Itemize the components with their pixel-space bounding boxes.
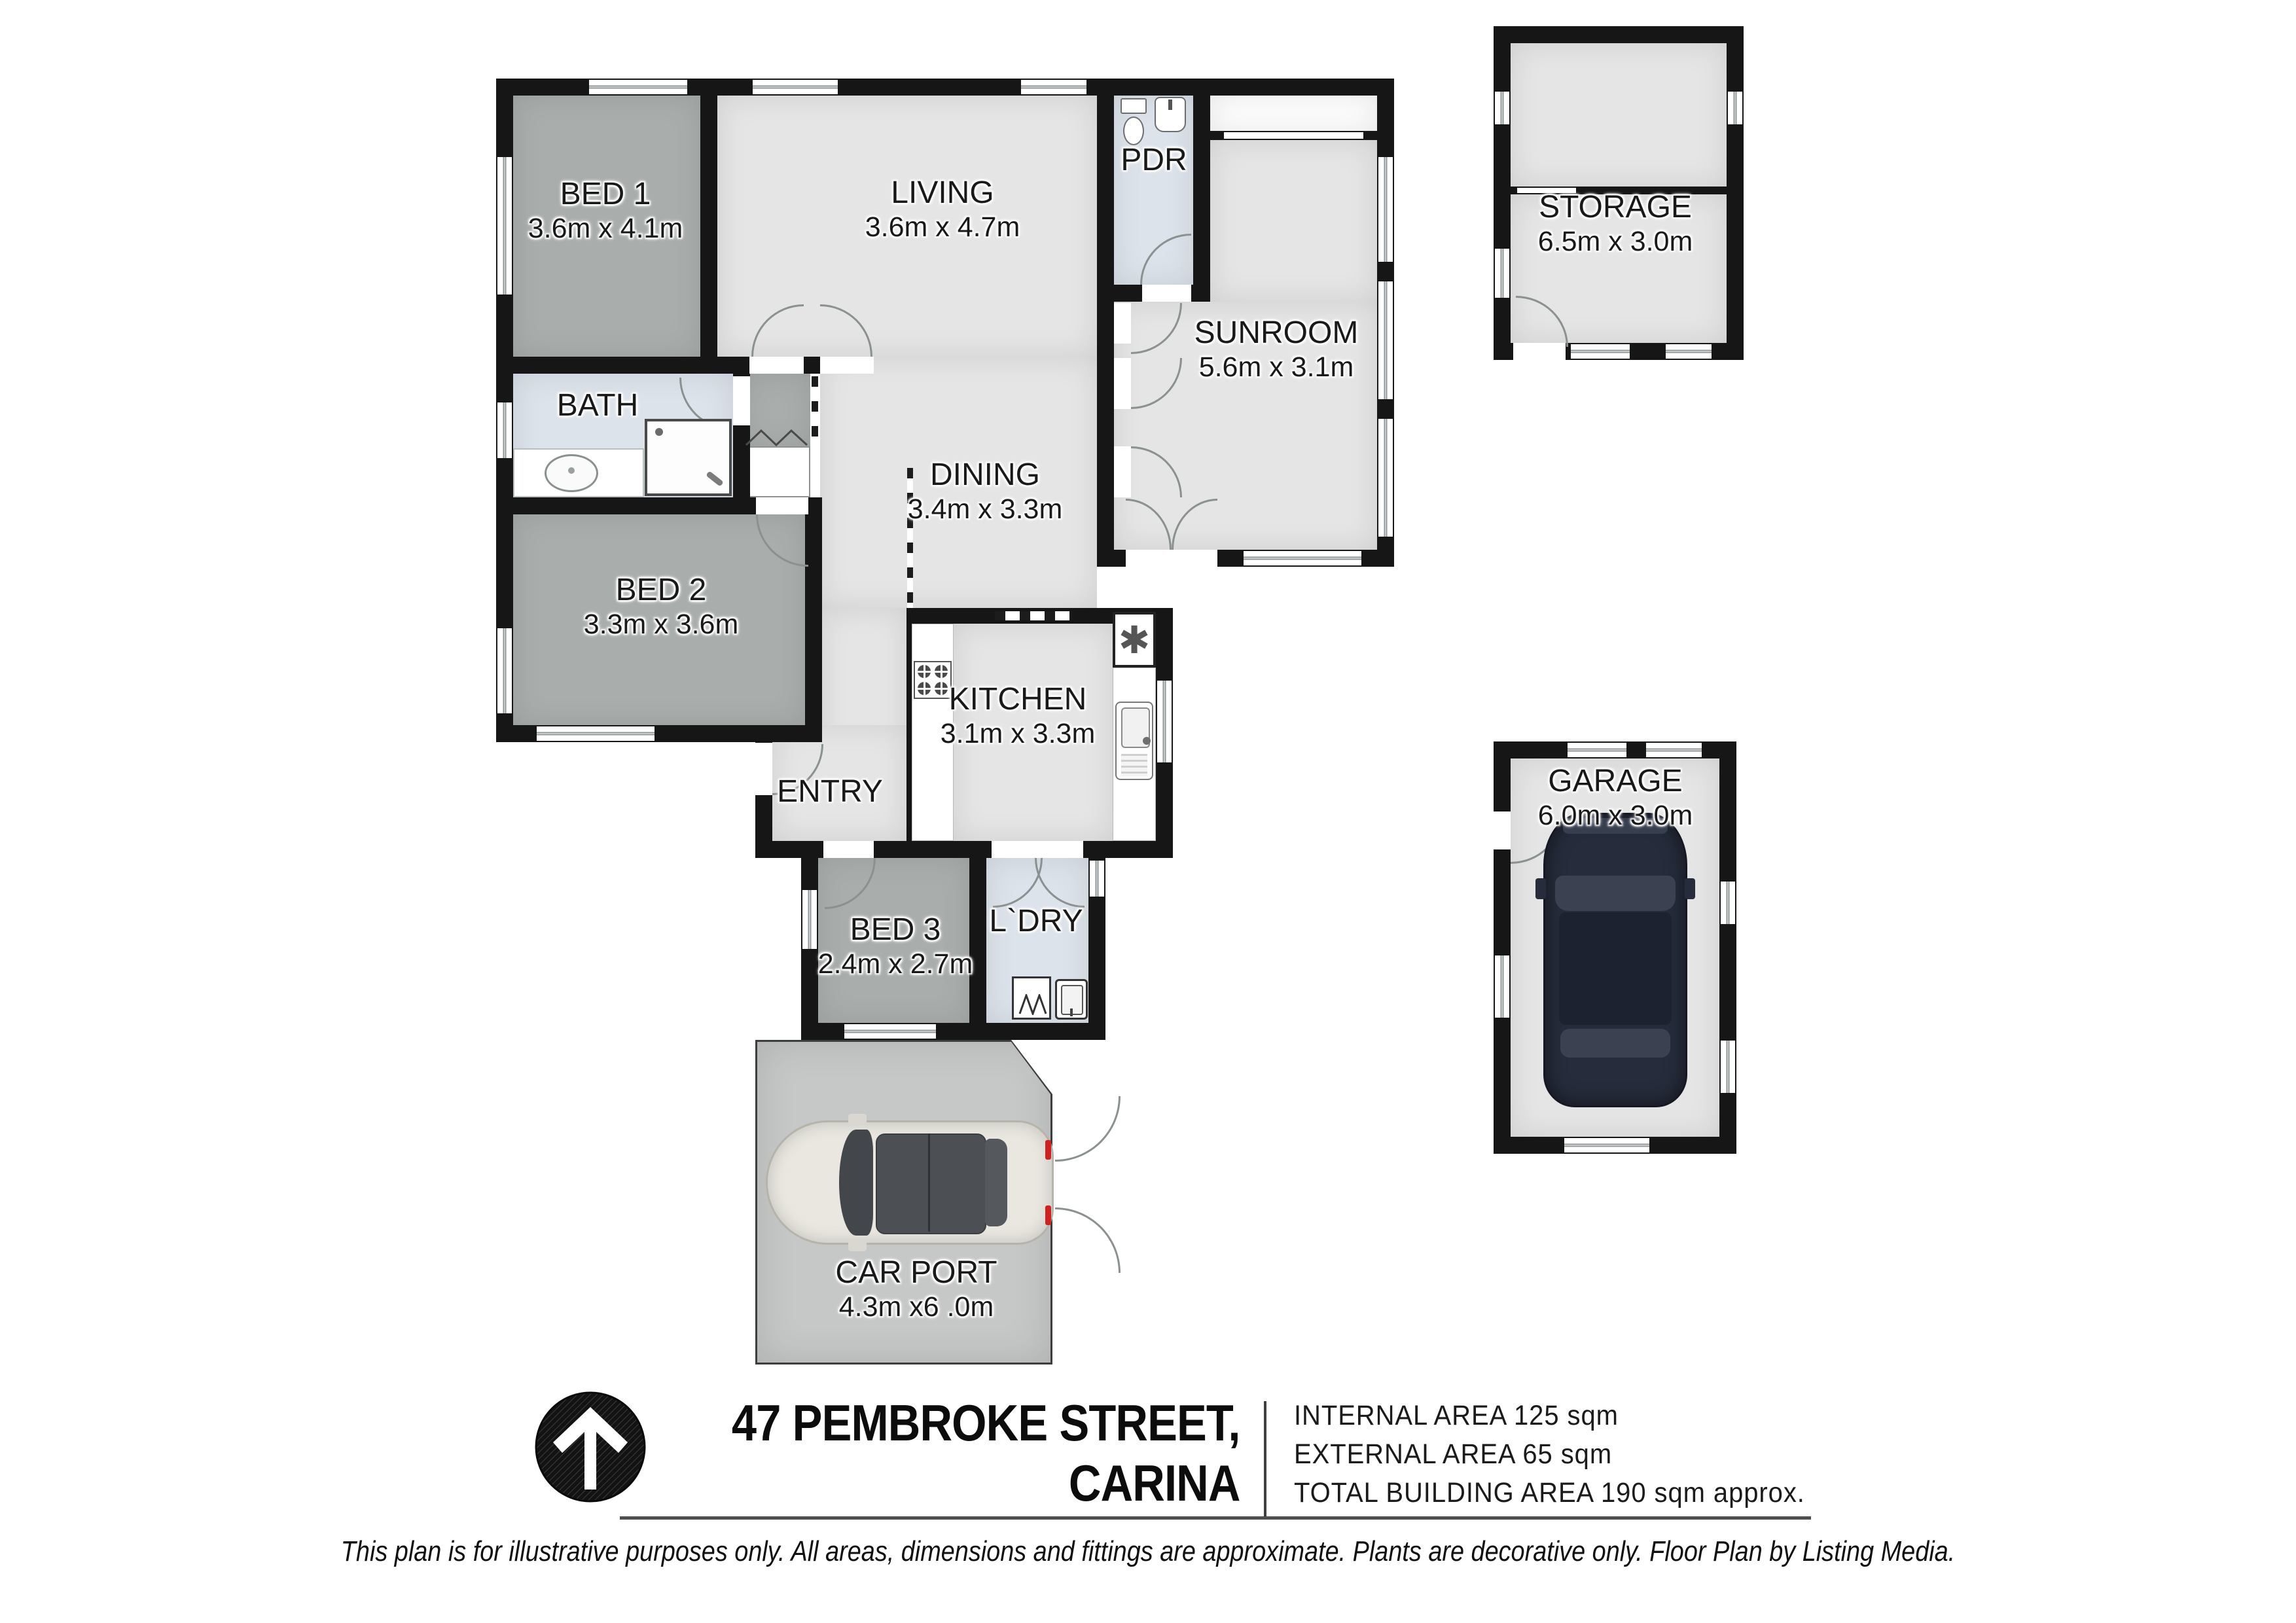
window <box>1378 419 1393 537</box>
window <box>1224 132 1363 139</box>
room-name: CAR PORT <box>835 1255 997 1291</box>
room-dims: 3.6m x 4.1m <box>528 213 683 245</box>
address-line2: CARINA <box>732 1453 1240 1513</box>
room-label-carport: CAR PORT 4.3m x6 .0m <box>835 1255 997 1324</box>
car-windshield <box>839 1130 873 1236</box>
toilet-tank-icon <box>1121 98 1147 114</box>
window <box>1721 882 1735 924</box>
room-label-entry: ENTRY <box>777 774 883 810</box>
window <box>1568 743 1626 757</box>
room-label-sunroom: SUNROOM 5.6m x 3.1m <box>1194 315 1359 384</box>
bifold-door-icon <box>745 429 808 446</box>
door-arc <box>1055 1207 1121 1273</box>
wall <box>1193 96 1210 302</box>
wall <box>1494 741 1511 1154</box>
room-dims: 3.1m x 3.3m <box>941 718 1096 751</box>
room-name: KITCHEN <box>941 681 1096 718</box>
door-opening <box>823 841 874 858</box>
room-name: SUNROOM <box>1194 315 1359 351</box>
footer-divider <box>1264 1401 1266 1518</box>
disclaimer-text: This plan is for illustrative purposes o… <box>161 1535 2136 1568</box>
wall <box>801 858 818 1040</box>
area-summary: INTERNAL AREA 125 sqm EXTERNAL AREA 65 s… <box>1294 1397 1805 1512</box>
room-dims: 3.3m x 3.6m <box>584 609 739 641</box>
door-opening <box>756 497 808 514</box>
door-opening <box>755 743 772 795</box>
faucet-icon <box>1070 1008 1073 1016</box>
window <box>1564 1138 1649 1152</box>
storage-room-upper <box>1511 43 1727 187</box>
door-opening <box>1126 550 1217 567</box>
car-mirror <box>1685 878 1695 899</box>
washer-glyph-icon <box>1018 994 1047 1015</box>
room-name: BED 1 <box>528 176 683 213</box>
basin-drain-icon <box>568 467 575 474</box>
burner-icon <box>918 665 931 678</box>
window <box>1090 861 1104 897</box>
room-name: L`DRY <box>989 903 1083 940</box>
internal-area: INTERNAL AREA 125 sqm <box>1294 1397 1805 1435</box>
window <box>1495 92 1509 124</box>
room-label-laundry: L`DRY <box>989 903 1083 940</box>
shower-drain-icon <box>655 428 663 436</box>
wall <box>1727 26 1744 360</box>
room-label-bed2: BED 2 3.3m x 3.6m <box>584 572 739 641</box>
room-name: PDR <box>1121 142 1187 179</box>
car-mirror <box>848 1241 867 1251</box>
wall <box>1494 26 1511 360</box>
window <box>1646 743 1702 757</box>
washing-machine-icon <box>1012 976 1051 1020</box>
room-name: BED 3 <box>818 912 973 948</box>
room-name: BATH <box>557 387 638 424</box>
room-dims: 6.0m x 3.0m <box>1538 800 1693 832</box>
room-name: DINING <box>908 457 1063 493</box>
car-rear-window <box>1560 1029 1670 1058</box>
room-label-garage: GARAGE 6.0m x 3.0m <box>1538 763 1693 832</box>
window <box>1728 92 1742 124</box>
room-dims: 6.5m x 3.0m <box>1538 226 1693 259</box>
room-dims: 2.4m x 2.7m <box>818 948 973 981</box>
room-dims: 3.4m x 3.3m <box>908 493 1063 526</box>
door-arc <box>1055 1096 1121 1162</box>
wall <box>986 1023 1105 1040</box>
burner-icon <box>918 682 931 695</box>
door-opening <box>992 841 1083 858</box>
car-mirror <box>848 1114 867 1124</box>
door-opening <box>1114 303 1131 344</box>
car-top-view-carport <box>766 1120 1054 1245</box>
window <box>1021 80 1086 94</box>
window <box>1666 344 1712 359</box>
window <box>1244 551 1361 565</box>
car-top-view-garage <box>1543 813 1687 1107</box>
car-taillight <box>1045 1205 1051 1225</box>
room-name: BED 2 <box>584 572 739 609</box>
shower-handle-icon <box>706 471 724 486</box>
wall <box>1494 26 1744 43</box>
wall <box>906 624 912 841</box>
window <box>1721 1041 1735 1093</box>
room-label-living: LIVING 3.6m x 4.7m <box>865 175 1020 244</box>
total-building-area: TOTAL BUILDING AREA 190 sqm approx. <box>1294 1474 1805 1512</box>
room-name: LIVING <box>865 175 1020 211</box>
pdr-sink-icon <box>1155 97 1186 132</box>
window <box>589 80 687 94</box>
laundry-tub-icon <box>1055 979 1088 1020</box>
room-label-bed3: BED 3 2.4m x 2.7m <box>818 912 973 981</box>
room-label-storage: STORAGE 6.5m x 3.0m <box>1538 189 1693 259</box>
door-opening <box>1114 358 1131 409</box>
cupboard <box>743 446 810 497</box>
room-name: STORAGE <box>1538 189 1693 226</box>
window <box>497 157 512 294</box>
kitchen-sink-icon <box>1115 702 1153 780</box>
room-dims: 3.6m x 4.7m <box>865 211 1020 244</box>
property-address: 47 PEMBROKE STREET, CARINA <box>732 1393 1240 1513</box>
cased-opening <box>995 611 1071 620</box>
window <box>753 80 838 94</box>
room-label-bed1: BED 1 3.6m x 4.1m <box>528 176 683 245</box>
window <box>1495 955 1509 1018</box>
floor-plan-canvas: ✱ BED 1 3.6m x 4. <box>0 0 2296 1623</box>
car-roof <box>1559 912 1672 1025</box>
external-area: EXTERNAL AREA 65 sqm <box>1294 1435 1805 1474</box>
shower-icon <box>645 419 732 496</box>
car-roof-split <box>928 1133 930 1232</box>
window <box>1378 281 1393 399</box>
window <box>537 726 655 741</box>
address-line1: 47 PEMBROKE STREET, <box>732 1393 1240 1453</box>
wall <box>496 357 874 374</box>
door-opening <box>733 376 750 425</box>
window <box>1157 681 1172 762</box>
window <box>1378 157 1393 262</box>
sink-drainer-icon <box>1121 754 1147 776</box>
car-taillight <box>1045 1140 1051 1160</box>
door-opening <box>1494 811 1511 849</box>
door-opening <box>1142 285 1191 302</box>
room-label-bath: BATH <box>557 387 638 424</box>
burner-icon <box>935 665 948 678</box>
car-rear-window <box>985 1139 1007 1226</box>
window <box>497 628 512 713</box>
north-arrow-logo-icon <box>535 1391 646 1503</box>
wall <box>1097 302 1114 550</box>
door-opening <box>1114 446 1131 497</box>
wall <box>1097 96 1114 285</box>
room-label-kitchen: KITCHEN 3.1m x 3.3m <box>941 681 1096 751</box>
faucet-icon <box>1168 99 1172 110</box>
room-dims: 5.6m x 3.1m <box>1194 351 1359 384</box>
door-opening <box>820 357 874 374</box>
room-label-dining: DINING 3.4m x 3.3m <box>908 457 1063 526</box>
room-dims: 4.3m x6 .0m <box>835 1291 997 1324</box>
window <box>1495 249 1509 298</box>
cased-opening <box>812 376 818 446</box>
room-label-pdr: PDR <box>1121 142 1187 179</box>
car-roof <box>876 1133 986 1234</box>
faucet-icon <box>1143 737 1151 745</box>
room-name: ENTRY <box>777 774 883 810</box>
wall <box>700 96 717 357</box>
window <box>802 890 817 949</box>
porch-nook <box>1210 96 1377 131</box>
door-opening <box>749 357 804 374</box>
footer-rule <box>620 1516 1811 1520</box>
car-windshield <box>1555 876 1676 911</box>
toilet-bowl-icon <box>1123 116 1144 145</box>
car-mirror <box>1535 878 1546 899</box>
room-sunroom-upper <box>1210 140 1377 302</box>
room-name: GARAGE <box>1538 763 1693 800</box>
window <box>497 402 512 458</box>
window <box>844 1024 936 1039</box>
hot-water-glyph: ✱ <box>1119 618 1151 662</box>
window <box>1571 344 1630 359</box>
hot-water-icon: ✱ <box>1113 612 1156 668</box>
